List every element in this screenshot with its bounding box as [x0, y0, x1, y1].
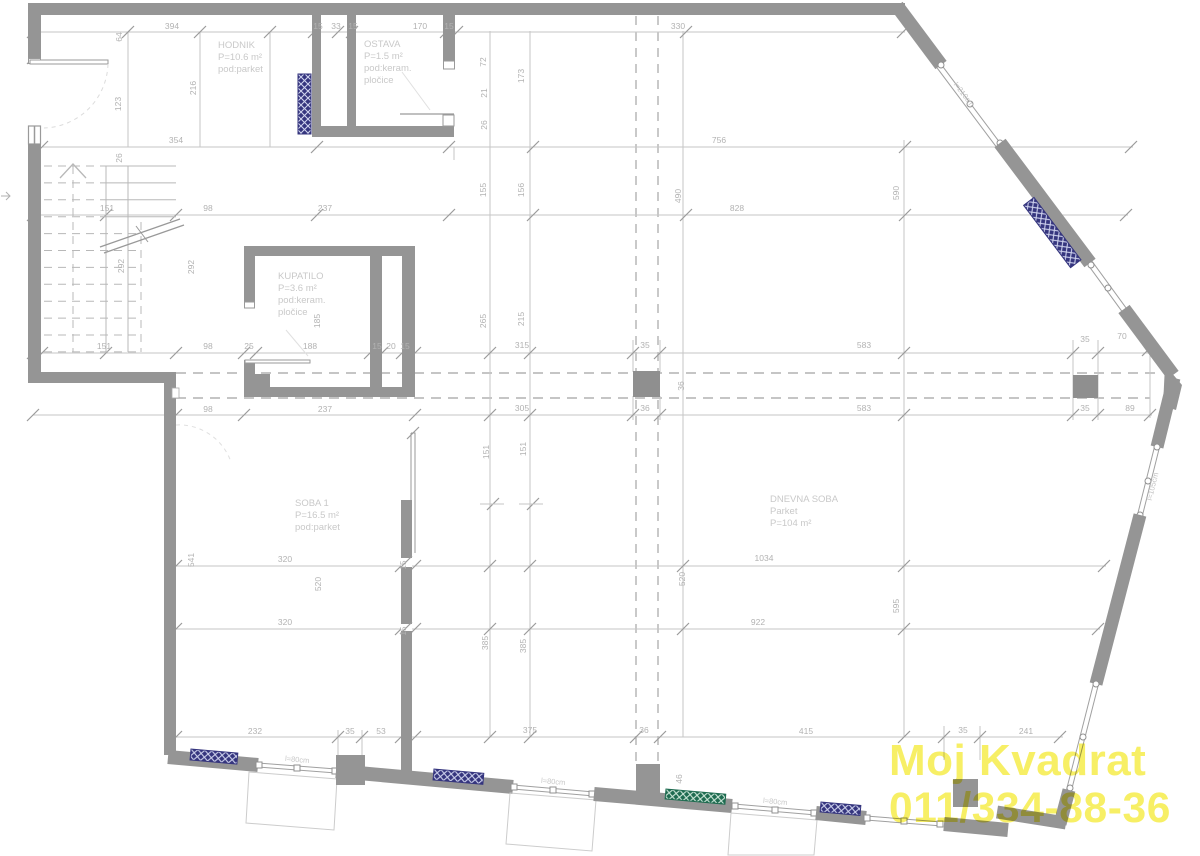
svg-text:SOBA 1: SOBA 1 [295, 498, 329, 509]
svg-text:15: 15 [313, 21, 323, 31]
svg-text:170: 170 [413, 21, 427, 31]
svg-text:15: 15 [348, 21, 358, 31]
svg-text:151: 151 [97, 341, 111, 351]
svg-text:35: 35 [958, 725, 968, 735]
svg-text:394: 394 [165, 21, 179, 31]
svg-text:Moj Kvadrat: Moj Kvadrat [889, 736, 1146, 785]
svg-text:237: 237 [318, 404, 332, 414]
svg-text:315: 315 [515, 340, 529, 350]
svg-text:237: 237 [318, 203, 332, 213]
svg-text:292: 292 [116, 259, 126, 273]
svg-text:1034: 1034 [755, 553, 774, 563]
svg-text:151: 151 [481, 445, 491, 459]
svg-text:216: 216 [188, 81, 198, 95]
svg-text:385: 385 [518, 639, 528, 653]
svg-text:305: 305 [515, 403, 529, 413]
svg-text:541: 541 [186, 553, 196, 567]
svg-text:HODNIK: HODNIK [218, 40, 256, 51]
svg-text:922: 922 [751, 617, 765, 627]
svg-text:KUPATILO: KUPATILO [278, 271, 324, 282]
svg-text:P=3.6 m²: P=3.6 m² [278, 283, 317, 294]
svg-text:156: 156 [516, 183, 526, 197]
svg-text:35: 35 [345, 726, 355, 736]
svg-text:26: 26 [479, 120, 489, 130]
svg-text:15: 15 [399, 626, 408, 635]
svg-text:151: 151 [100, 203, 114, 213]
svg-text:415: 415 [799, 726, 813, 736]
svg-text:pod:parket: pod:parket [218, 64, 263, 75]
svg-text:OSTAVA: OSTAVA [364, 39, 401, 50]
svg-text:155: 155 [478, 183, 488, 197]
svg-text:P=10.6 m²: P=10.6 m² [218, 52, 262, 63]
svg-text:35: 35 [640, 340, 650, 350]
svg-text:520: 520 [677, 572, 687, 586]
svg-text:pod:keram.: pod:keram. [278, 295, 326, 306]
svg-text:pod:parket: pod:parket [295, 522, 340, 533]
svg-text:P=104 m²: P=104 m² [770, 518, 811, 529]
svg-text:15: 15 [400, 341, 410, 351]
svg-text:15: 15 [444, 21, 454, 31]
svg-text:265: 265 [478, 314, 488, 328]
svg-text:241: 241 [1019, 726, 1033, 736]
svg-text:36: 36 [676, 381, 686, 391]
svg-text:520: 520 [313, 577, 323, 591]
svg-text:25: 25 [244, 341, 254, 351]
svg-text:215: 215 [516, 312, 526, 326]
svg-text:232: 232 [248, 726, 262, 736]
svg-text:98: 98 [203, 404, 213, 414]
svg-text:15: 15 [372, 341, 382, 351]
svg-text:pločice: pločice [278, 307, 308, 318]
svg-text:590: 590 [891, 186, 901, 200]
svg-text:DNEVNA SOBA: DNEVNA SOBA [770, 494, 839, 505]
svg-text:P=16.5 m²: P=16.5 m² [295, 510, 339, 521]
svg-text:756: 756 [712, 135, 726, 145]
svg-text:123: 123 [113, 97, 123, 111]
svg-text:70: 70 [1117, 331, 1127, 341]
svg-text:292: 292 [186, 260, 196, 274]
svg-text:828: 828 [730, 203, 744, 213]
svg-text:64: 64 [114, 32, 124, 42]
svg-text:011/334-88-36: 011/334-88-36 [889, 785, 1171, 832]
svg-text:188: 188 [303, 341, 317, 351]
svg-text:33: 33 [331, 21, 341, 31]
svg-text:490: 490 [673, 189, 683, 203]
svg-text:98: 98 [203, 203, 213, 213]
svg-text:330: 330 [671, 21, 685, 31]
svg-text:595: 595 [891, 599, 901, 613]
svg-text:Parket: Parket [770, 506, 798, 517]
svg-text:583: 583 [857, 403, 871, 413]
svg-text:173: 173 [516, 69, 526, 83]
svg-text:385: 385 [480, 636, 490, 650]
svg-text:354: 354 [169, 135, 183, 145]
svg-text:pločice: pločice [364, 75, 394, 86]
svg-text:35: 35 [1080, 403, 1090, 413]
svg-text:35: 35 [1080, 334, 1090, 344]
svg-text:20: 20 [386, 341, 396, 351]
svg-text:151: 151 [518, 442, 528, 456]
svg-text:46: 46 [674, 774, 684, 784]
svg-text:320: 320 [278, 617, 292, 627]
svg-text:21: 21 [479, 88, 489, 98]
svg-text:26: 26 [114, 153, 124, 163]
svg-text:P=1.5 m²: P=1.5 m² [364, 51, 403, 62]
svg-text:320: 320 [278, 554, 292, 564]
svg-text:36: 36 [640, 403, 650, 413]
svg-text:53: 53 [376, 726, 386, 736]
svg-text:pod:keram.: pod:keram. [364, 63, 412, 74]
svg-text:36: 36 [639, 725, 649, 735]
svg-text:98: 98 [203, 341, 213, 351]
svg-text:89: 89 [1125, 403, 1135, 413]
svg-text:15: 15 [399, 560, 408, 569]
svg-text:375: 375 [523, 725, 537, 735]
svg-text:583: 583 [857, 340, 871, 350]
svg-text:185: 185 [312, 314, 322, 328]
svg-text:72: 72 [478, 57, 488, 67]
